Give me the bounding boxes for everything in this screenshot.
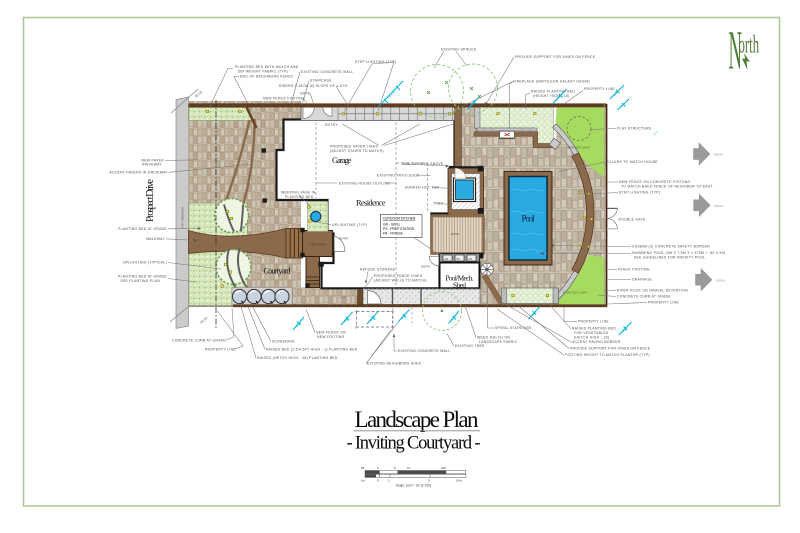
svg-text:10: 10 (407, 466, 411, 470)
svg-text:PROVIDE SUPPORT FOR VINES ON F: PROVIDE SUPPORT FOR VINES ON FENCE (515, 55, 596, 59)
svg-text:SEE PLANTING PLAN: SEE PLANTING PLAN (120, 279, 160, 283)
svg-text:VIEWS: VIEWS (714, 152, 724, 156)
svg-text:REFUSE STORAGE: REFUSE STORAGE (360, 268, 396, 272)
svg-text:DOUBLE GATE: DOUBLE GATE (619, 217, 647, 221)
svg-text:(HETCH HIGH - 18): (HETCH HIGH - 18) (574, 336, 609, 340)
svg-text:CONCRETE CURB AT GRADE: CONCRETE CURB AT GRADE (172, 339, 226, 343)
svg-text:DRAINAGE: DRAINAGE (632, 278, 653, 282)
svg-text:PLANTING BED AT GRADE: PLANTING BED AT GRADE (118, 227, 167, 231)
svg-text:PATIO: PATIO (451, 232, 460, 236)
svg-text:FOREVER LAWN: FOREVER LAWN (563, 291, 587, 295)
svg-text:- Inviting Courtyard -: - Inviting Courtyard - (347, 434, 481, 454)
svg-text:Pool: Pool (522, 214, 535, 224)
svg-text:50# WEIGHT FABRIC (TYP): 50# WEIGHT FABRIC (TYP) (238, 70, 288, 74)
svg-text:WEEPING VASE IN: WEEPING VASE IN (281, 191, 316, 195)
svg-text:VERANDA: VERANDA (310, 242, 327, 246)
svg-text:PROPOSED FENCE LINES: PROPOSED FENCE LINES (374, 274, 423, 278)
svg-text:UPLIGHTING (TYP): UPLIGHTING (TYP) (332, 223, 367, 227)
svg-text:Prospect Drive: Prospect Drive (145, 179, 156, 222)
svg-text:FOREVER LAWN: FOREVER LAWN (566, 146, 590, 150)
svg-text:STEP LIGHTING (TYP): STEP LIGHTING (TYP) (355, 60, 396, 64)
svg-text:STEP LIGHTING (TYP): STEP LIGHTING (TYP) (619, 191, 660, 195)
svg-text:FIREPLACE (NAPOLEON GALAXY GSS: FIREPLACE (NAPOLEON GALAXY GSS48) (513, 80, 590, 84)
svg-text:Residence: Residence (356, 198, 386, 208)
svg-text:NEW FENCE ON: NEW FENCE ON (316, 331, 346, 335)
svg-text:PROPERTY LINE: PROPERTY LINE (578, 320, 609, 324)
svg-text:RAISED PLANTING BED: RAISED PLANTING BED (531, 90, 575, 94)
svg-text:SCREENING: SCREENING (272, 340, 295, 344)
svg-text:(HEIGHT HIGH - 18): (HEIGHT HIGH - 18) (533, 94, 570, 98)
svg-text:ENTRY: ENTRY (325, 123, 338, 127)
svg-text:PS - PREP STATION: PS - PREP STATION (383, 227, 415, 231)
svg-text:PILLARS TO MATCH HOUSE: PILLARS TO MATCH HOUSE (606, 160, 658, 164)
svg-text:ACCENT PAVING BORDER: ACCENT PAVING BORDER (572, 340, 621, 344)
svg-text:GATE: GATE (339, 296, 347, 300)
svg-text:PLAY STRUCTURE: PLAY STRUCTURE (617, 127, 652, 131)
svg-text:EXISTING NEIGHBORS SHED: EXISTING NEIGHBORS SHED (367, 362, 422, 366)
svg-text:NEW FOOTING: NEW FOOTING (317, 335, 345, 339)
svg-text:EXISTING CONCRETE WALL: EXISTING CONCRETE WALL (398, 349, 450, 353)
svg-text:1m: 1m (361, 479, 366, 483)
svg-text:PROPERTY LINE: PROPERTY LINE (584, 87, 615, 91)
svg-text:RISERS 0.15CM (6) SLOPE OF 1.6: RISERS 0.15CM (6) SLOPE OF 1.67% (279, 84, 348, 88)
svg-text:FOOTING HEIGHT TO MATCH PLANTE: FOOTING HEIGHT TO MATCH PLANTER (TYP) (565, 353, 650, 357)
svg-text:WALKWAY: WALKWAY (146, 237, 165, 241)
svg-text:CONCRETE CURB AT GRADE: CONCRETE CURB AT GRADE (617, 295, 671, 299)
svg-text:OUTDOOR KITCHEN: OUTDOOR KITCHEN (383, 217, 416, 221)
svg-text:20ft: 20ft (441, 466, 446, 470)
svg-text:(ADJUST WALLS TO MATCH): (ADJUST WALLS TO MATCH) (374, 279, 427, 283)
svg-text:Landscape Plan: Landscape Plan (355, 407, 480, 432)
svg-text:FOR VEGETABLES: FOR VEGETABLES (574, 331, 609, 335)
svg-text:5ft: 5ft (361, 466, 365, 470)
svg-text:CITY SIDEWALK: CITY SIDEWALK (181, 207, 185, 229)
svg-text:Courtyard: Courtyard (264, 267, 291, 276)
svg-text:NEW FENCE ON CONCRETE FOOTING: NEW FENCE ON CONCRETE FOOTING (619, 180, 690, 184)
svg-text:SEE GUIDELINES FOR INFINITY PO: SEE GUIDELINES FOR INFINITY POOL (634, 256, 705, 260)
svg-text:WEED MULCH ON: WEED MULCH ON (477, 336, 510, 340)
svg-text:SUNKEN HOT TUB: SUNKEN HOT TUB (405, 186, 439, 190)
svg-text:GR - GRILL: GR - GRILL (383, 223, 401, 227)
svg-text:VIEWS: VIEWS (716, 278, 726, 282)
svg-text:10m: 10m (456, 479, 462, 483)
svg-text:STAIRCASE: STAIRCASE (310, 79, 332, 83)
svg-text:UPLIGHTING (TYPICAL): UPLIGHTING (TYPICAL) (123, 261, 167, 265)
svg-text:RAISED PLANTING BED: RAISED PLANTING BED (572, 327, 616, 331)
svg-text:PROPOSED PAVER LINES: PROPOSED PAVER LINES (330, 145, 378, 149)
svg-text:TREX: TREX (433, 202, 444, 206)
svg-text:LINE OF DECK ABOVE: LINE OF DECK ABOVE (402, 162, 444, 166)
svg-text:GATE: GATE (300, 92, 311, 96)
svg-text:FENCE FOOTING: FENCE FOOTING (618, 268, 650, 272)
svg-text:RIVER ROCK ON GRAVEL DETENTION: RIVER ROCK ON GRAVEL DETENTION (617, 289, 688, 293)
svg-text:(ADJUST STAIRS TO MATCH): (ADJUST STAIRS TO MATCH) (330, 149, 384, 153)
svg-text:EXISTING CONCRETE WALL: EXISTING CONCRETE WALL (301, 70, 353, 74)
svg-text:DRIVEWAY: DRIVEWAY (142, 163, 163, 167)
svg-text:TO MATCH BACK FENCE OF NEIGHBO: TO MATCH BACK FENCE OF NEIGHBOR TO EAST (621, 185, 713, 189)
svg-text:Garage: Garage (332, 155, 352, 165)
svg-text:orth: orth (739, 31, 760, 59)
svg-text:EXISTING TREE: EXISTING TREE (455, 344, 485, 348)
svg-text:Scale: 1cm = 1m (1:100): Scale: 1cm = 1m (1:100) (396, 484, 431, 488)
svg-text:RAISED BED (2.5/4.5FT HIGH - 1: RAISED BED (2.5/4.5FT HIGH - 1) PLANTING… (266, 348, 358, 352)
svg-text:PLANTING BED WITH MULCH AND: PLANTING BED WITH MULCH AND (235, 65, 299, 69)
svg-text:ACCENT PAVERS IN DRIVEWAY: ACCENT PAVERS IN DRIVEWAY (109, 171, 168, 175)
svg-text:0.8080M (2) CONCRETE SAFETY BO: 0.8080M (2) CONCRETE SAFETY BORDER (632, 245, 710, 249)
svg-text:EXISTING PATIO EDGE: EXISTING PATIO EDGE (377, 174, 420, 178)
svg-text:PROVIDE SUPPORT FOR VINES ON F: PROVIDE SUPPORT FOR VINES ON FENCE (570, 347, 651, 351)
svg-text:END OF NEIGHBORS FENCE: END OF NEIGHBORS FENCE (240, 75, 294, 79)
svg-text:PROPERTY LINE: PROPERTY LINE (648, 301, 679, 305)
svg-text:SWIMMING POOL (3M X 7.5M X 1.3: SWIMMING POOL (3M X 7.5M X 1.375M + .50 … (632, 251, 725, 255)
svg-text:LANDSCAPE FABRIC: LANDSCAPE FABRIC (479, 340, 518, 344)
svg-text:NEW FENCE FOOTING: NEW FENCE FOOTING (263, 97, 305, 101)
svg-text:RAISED (HETCH HIGH - 18) PLANT: RAISED (HETCH HIGH - 18) PLANTING BED (257, 356, 338, 360)
svg-text:ENTRY: ENTRY (421, 265, 431, 269)
svg-text:EXISTING SPRUCE: EXISTING SPRUCE (441, 48, 477, 52)
svg-text:EXISTING HOUSE OUTLINE: EXISTING HOUSE OUTLINE (339, 182, 391, 186)
svg-text:VIEWS: VIEWS (714, 204, 724, 208)
svg-text:PROPERTY LINE: PROPERTY LINE (205, 348, 236, 352)
svg-text:PS: PS (457, 258, 461, 261)
svg-text:FR: FR (469, 258, 473, 261)
svg-text:PLANTING BED: PLANTING BED (285, 195, 314, 199)
svg-text:SPIRAL STAIRCASE: SPIRAL STAIRCASE (495, 326, 532, 330)
svg-text:ENTRY: ENTRY (340, 237, 350, 241)
svg-text:GR: GR (445, 258, 449, 261)
svg-text:FR - FRIDGE: FR - FRIDGE (383, 232, 404, 236)
